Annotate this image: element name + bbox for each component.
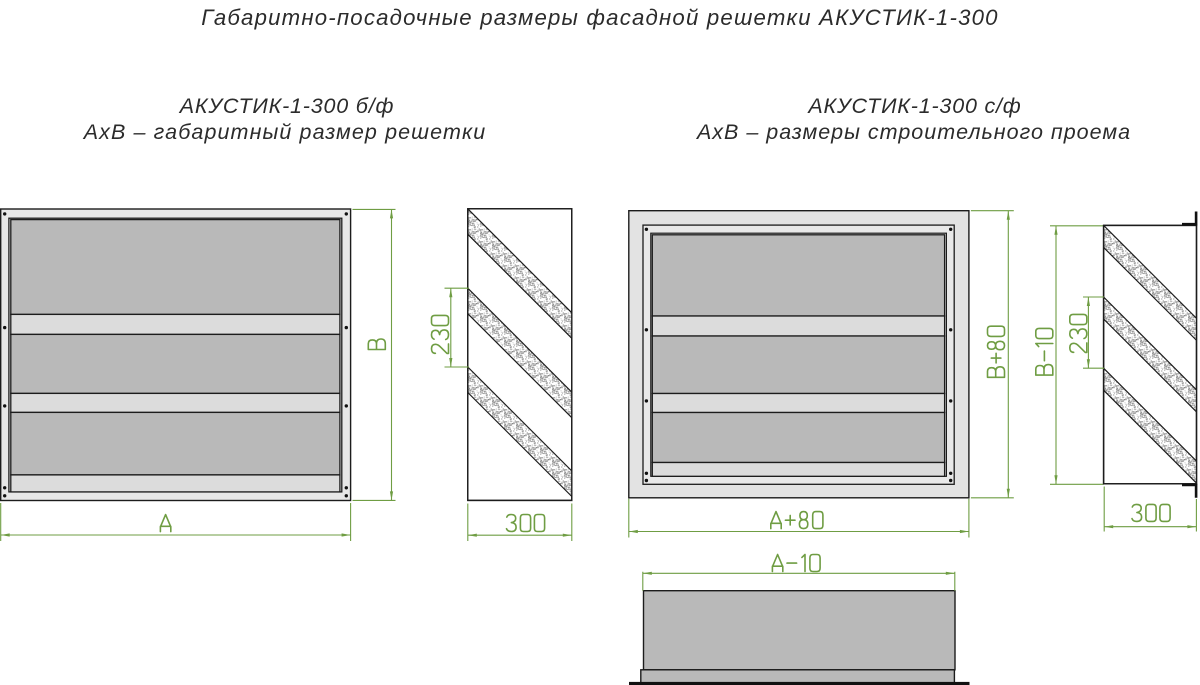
svg-text:Габаритно-посадочные размеры ф: Габаритно-посадочные размеры фасадной ре… [201, 5, 998, 30]
svg-text:АхВ – размеры строительного пр: АхВ – размеры строительного проема [695, 120, 1131, 144]
svg-text:АКУСТИК-1-300 б/ф: АКУСТИК-1-300 б/ф [178, 94, 395, 118]
svg-text:АКУСТИК-1-300 с/ф: АКУСТИК-1-300 с/ф [806, 94, 1021, 118]
svg-text:АхВ – габаритный размер решетк: АхВ – габаритный размер решетки [82, 120, 487, 144]
